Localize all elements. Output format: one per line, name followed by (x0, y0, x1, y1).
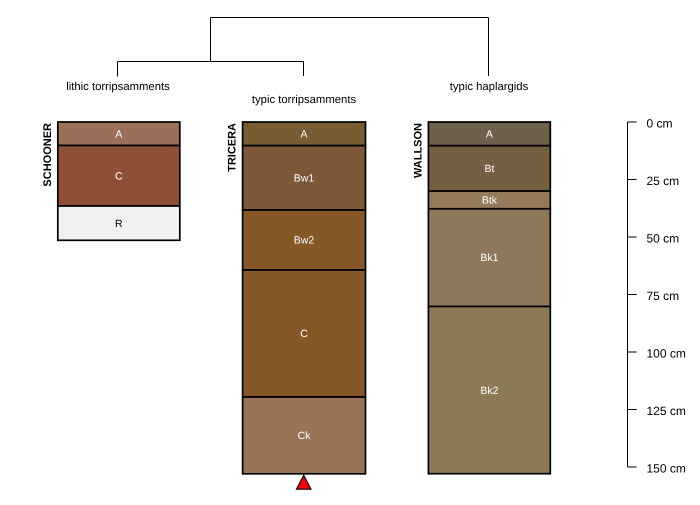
svg-text:Bk1: Bk1 (480, 252, 498, 264)
svg-text:lithic torripsamments: lithic torripsamments (66, 81, 170, 93)
svg-text:75 cm: 75 cm (647, 289, 680, 303)
svg-text:C: C (115, 171, 123, 183)
svg-text:A: A (115, 129, 122, 141)
svg-text:Bw1: Bw1 (294, 173, 315, 185)
svg-text:125 cm: 125 cm (647, 404, 686, 418)
svg-text:typic haplargids: typic haplargids (450, 81, 529, 93)
svg-text:25 cm: 25 cm (647, 174, 680, 188)
svg-text:TRICERA: TRICERA (227, 123, 239, 172)
svg-text:100 cm: 100 cm (647, 346, 686, 360)
svg-text:typic torripsamments: typic torripsamments (252, 94, 357, 106)
svg-text:0 cm: 0 cm (647, 116, 673, 130)
svg-text:Bk2: Bk2 (480, 385, 498, 397)
svg-text:WALLSON: WALLSON (413, 123, 425, 178)
svg-text:R: R (115, 218, 123, 230)
svg-text:Bw2: Bw2 (294, 235, 315, 247)
svg-text:Ck: Ck (298, 430, 312, 442)
svg-text:Bt: Bt (484, 163, 494, 175)
svg-text:C: C (300, 328, 308, 340)
svg-text:Btk: Btk (482, 195, 498, 207)
svg-text:SCHOONER: SCHOONER (42, 123, 54, 187)
svg-text:A: A (486, 129, 493, 141)
svg-text:150 cm: 150 cm (647, 461, 686, 475)
svg-text:50 cm: 50 cm (647, 231, 680, 245)
svg-text:A: A (300, 129, 307, 141)
